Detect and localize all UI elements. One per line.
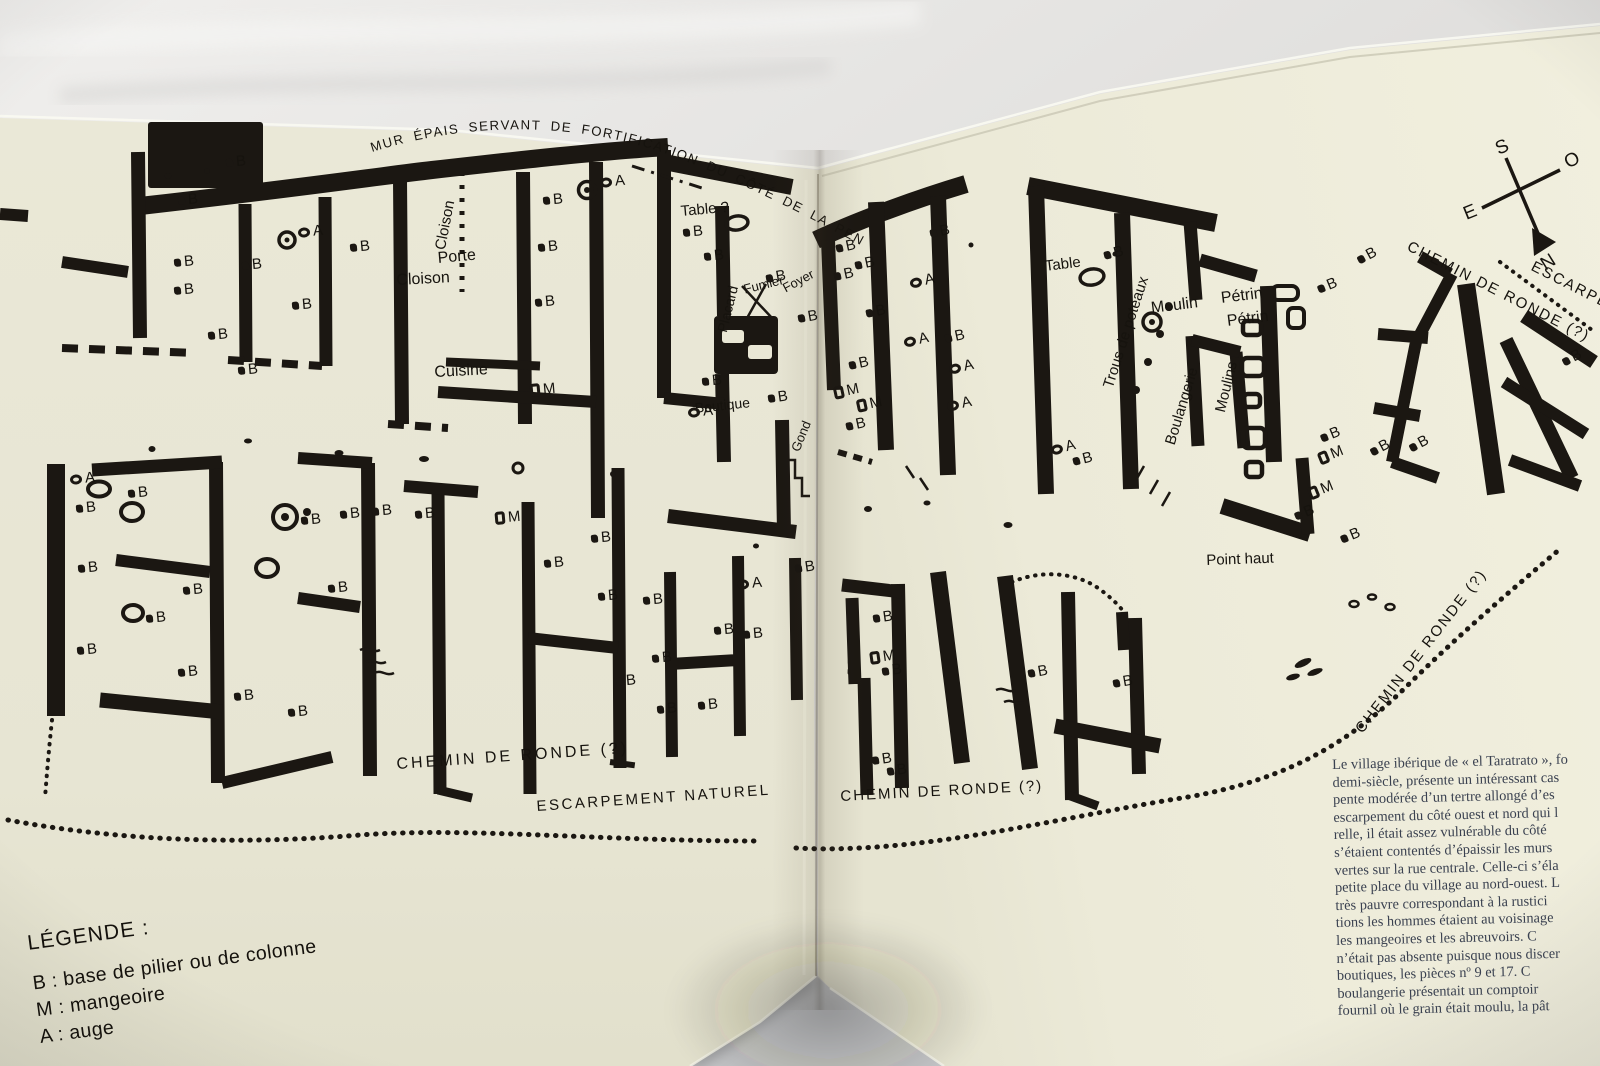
book-photo: S O E N MUR ÉPAIS SERVANT DE FORTIFICATI… xyxy=(0,0,1600,1066)
article-lines: Le village ibérique de « el Taratrato »,… xyxy=(1332,752,1574,1021)
